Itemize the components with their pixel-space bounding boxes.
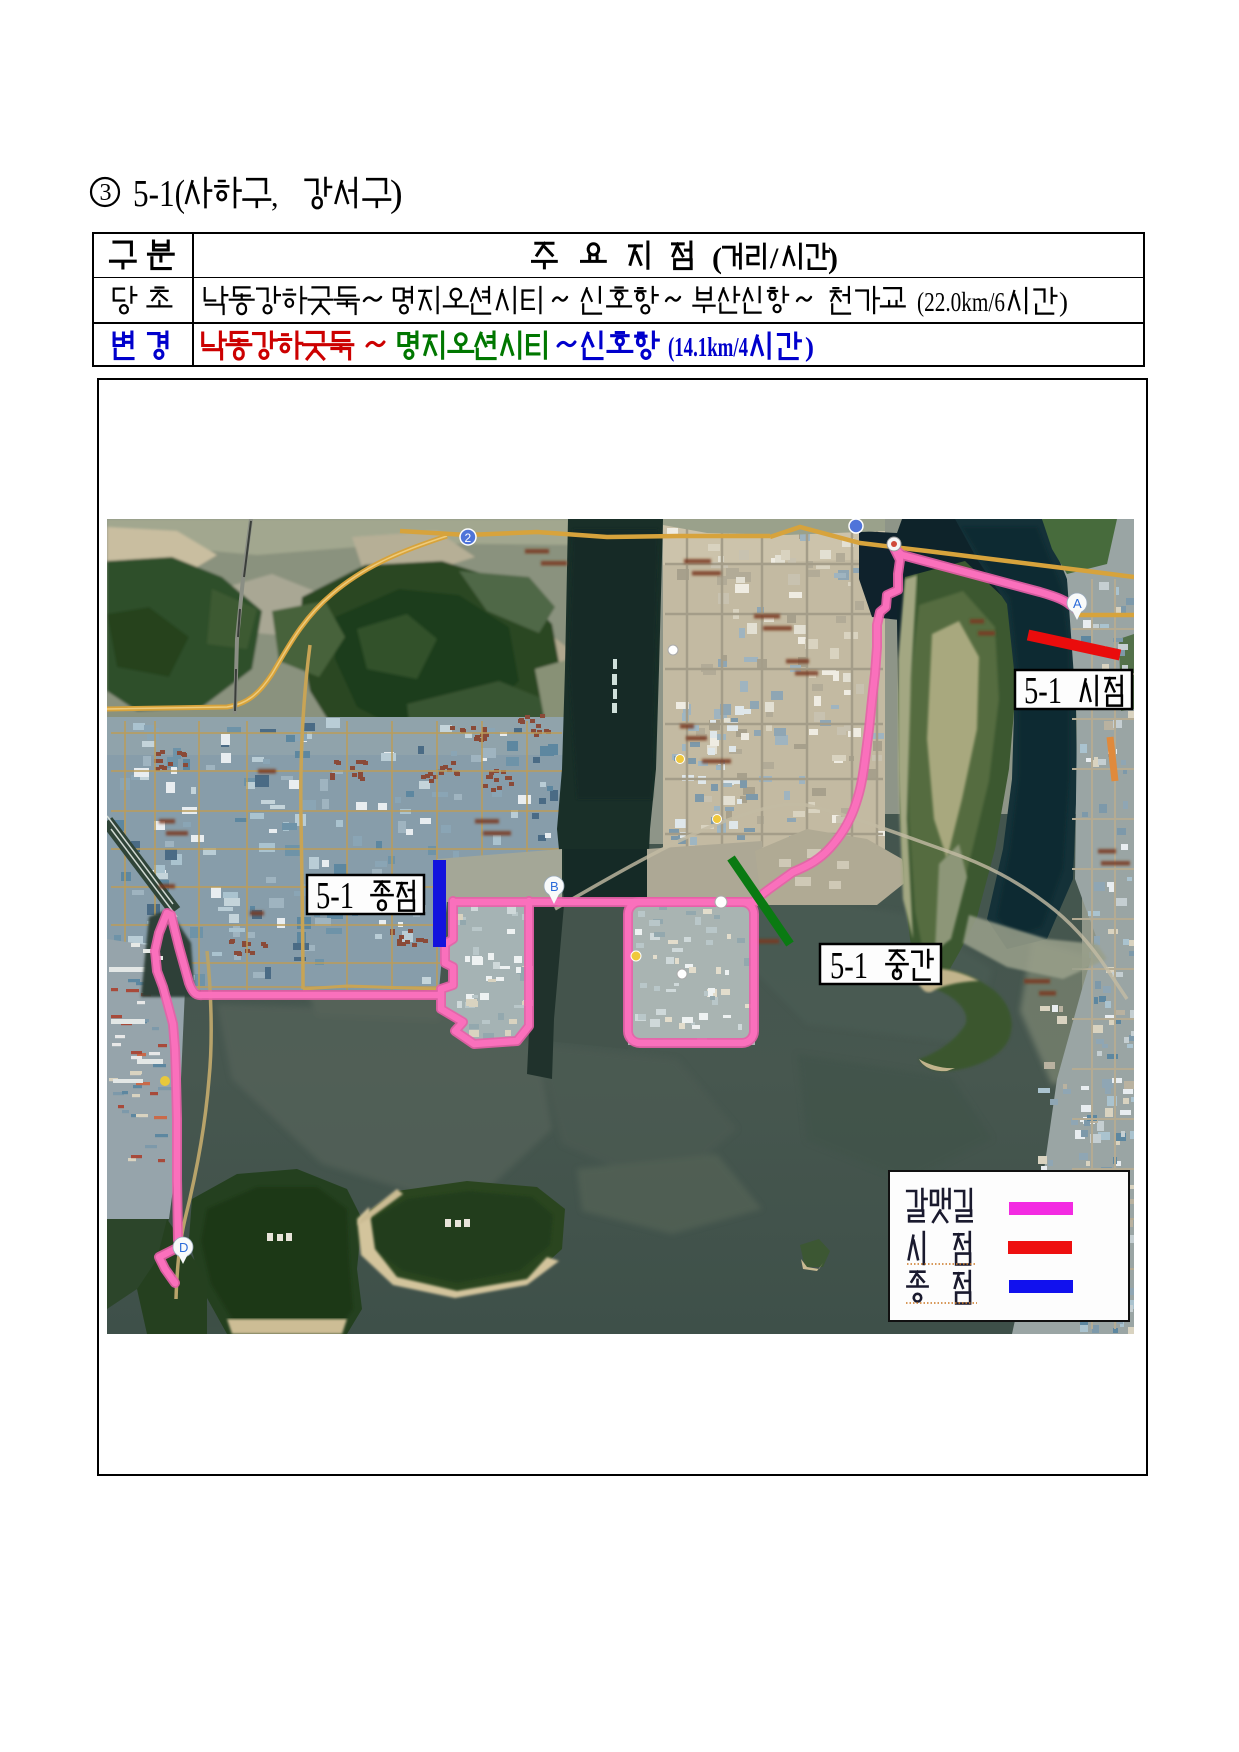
svg-text:5-1: 5-1 xyxy=(316,875,354,917)
svg-text:D: D xyxy=(179,1240,188,1255)
svg-text:(: ( xyxy=(712,242,722,275)
svg-text:B: B xyxy=(550,879,559,894)
svg-text:): ) xyxy=(1059,287,1068,317)
svg-text:3: 3 xyxy=(100,180,112,206)
svg-text:,: , xyxy=(271,180,279,213)
svg-text:): ) xyxy=(390,173,403,215)
svg-text:(14.1km/4: (14.1km/4 xyxy=(668,332,748,362)
svg-text:5-1(: 5-1( xyxy=(133,173,185,215)
svg-text:5-1: 5-1 xyxy=(1024,670,1062,712)
svg-text:A: A xyxy=(1073,596,1082,611)
svg-text:): ) xyxy=(805,332,814,362)
svg-text:5-1: 5-1 xyxy=(830,945,868,987)
svg-text:/: / xyxy=(769,242,779,275)
svg-text:): ) xyxy=(828,242,838,275)
svg-text:2: 2 xyxy=(465,531,472,545)
svg-text:(22.0km/6: (22.0km/6 xyxy=(917,287,1005,317)
